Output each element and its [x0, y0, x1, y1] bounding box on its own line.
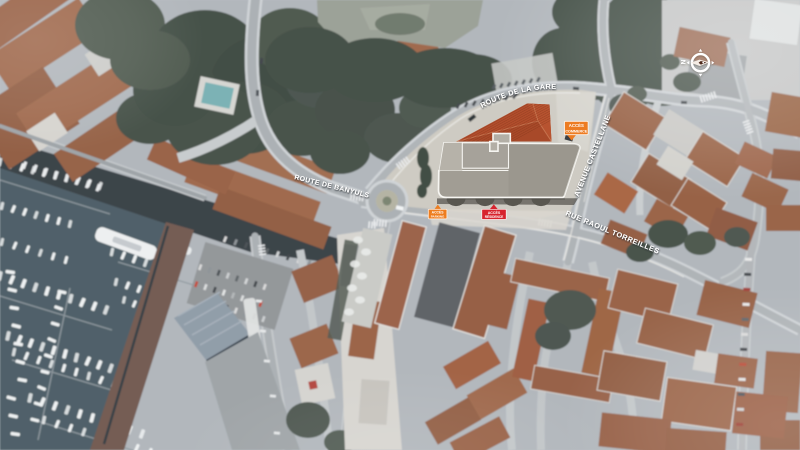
svg-text:N: N: [680, 59, 687, 64]
svg-text:RÉSIDENCE: RÉSIDENCE: [485, 214, 504, 219]
svg-text:PARKING: PARKING: [431, 214, 445, 218]
svg-text:COMMERCE: COMMERCE: [565, 129, 587, 133]
svg-text:ACCÈS: ACCÈS: [569, 123, 584, 128]
